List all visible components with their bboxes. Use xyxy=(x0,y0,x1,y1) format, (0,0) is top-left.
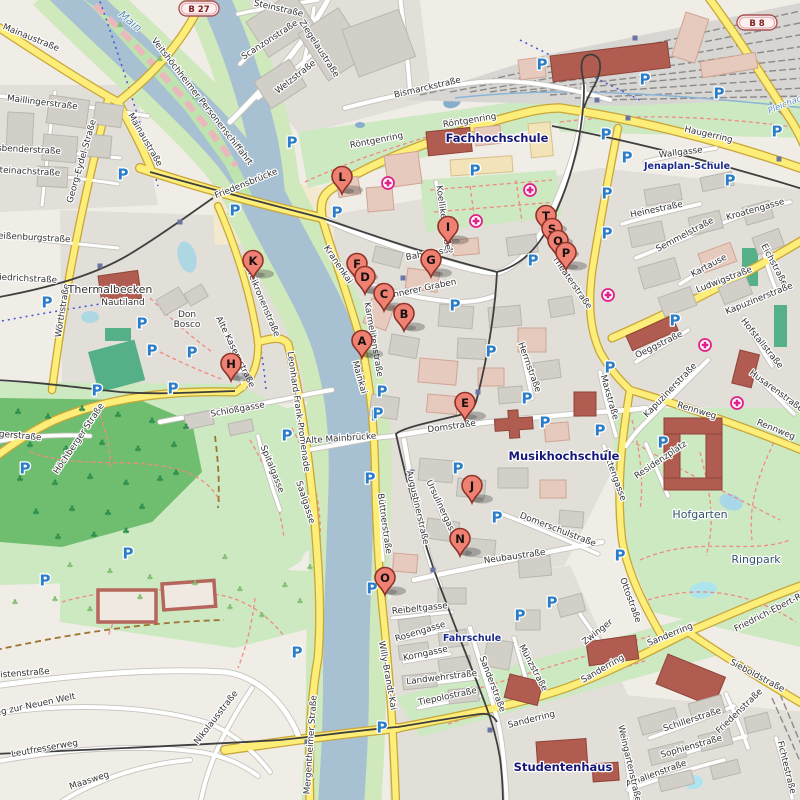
marker-letter: E xyxy=(461,396,469,410)
tram-stop-icon xyxy=(476,390,481,395)
poi-label: Thermalbecken xyxy=(67,283,153,296)
tree-icon: ♣ xyxy=(14,408,22,418)
parking-icon: P xyxy=(168,380,179,398)
parking-icon: P xyxy=(377,719,388,737)
tree-icon: ♣ xyxy=(66,561,73,570)
tram-stop-icon xyxy=(488,728,493,733)
parking-icon: P xyxy=(547,594,558,612)
tree-icon: ♣ xyxy=(51,595,58,604)
parking-icon: P xyxy=(602,225,613,243)
tree-icon: ♣ xyxy=(221,553,228,562)
tree-icon: ♣ xyxy=(32,508,40,518)
tram-stop-icon xyxy=(626,116,631,121)
tree-icon: ♣ xyxy=(98,439,106,449)
parking-icon: P xyxy=(670,312,681,330)
route-badge-label: B 8 xyxy=(749,19,764,29)
marker-letter: G xyxy=(426,253,435,267)
tree-icon: ♣ xyxy=(122,527,130,537)
building xyxy=(98,590,156,622)
tree-icon: ♣ xyxy=(258,611,265,620)
route-badge-label: B 27 xyxy=(188,5,209,15)
tree-icon: ♣ xyxy=(138,503,146,513)
tram-stop-icon xyxy=(431,568,436,573)
poi-label: Nautiland xyxy=(101,298,144,308)
pond xyxy=(355,122,365,128)
tree-icon: ♣ xyxy=(90,531,98,541)
parking-icon: P xyxy=(640,71,651,89)
park-label: Ringpark xyxy=(731,553,781,566)
tree-icon: ♣ xyxy=(54,533,62,543)
tree-icon: ♣ xyxy=(306,563,313,572)
map-canvas: ♣♣♣♣♣♣♣♣♣♣♣♣♣♣♣♣♣♣♣♣♣♣♣♣♣♣♣♣♣♣♣♣♣♣♣♣♣♣♣♣… xyxy=(0,0,800,800)
park-label: Hofgarten xyxy=(672,508,727,521)
parking-icon: P xyxy=(453,460,464,478)
tree-icon: ♣ xyxy=(156,475,164,485)
marker-letter: I xyxy=(446,220,450,234)
tree-icon: ♣ xyxy=(44,413,52,423)
parking-icon: P xyxy=(187,344,198,362)
tree-icon: ♣ xyxy=(172,469,180,479)
tram-stop-icon xyxy=(178,220,183,225)
parking-icon: P xyxy=(20,460,31,478)
parking-icon: P xyxy=(287,134,298,152)
building xyxy=(664,478,722,490)
tree-icon: ♣ xyxy=(78,405,86,415)
hospital-icon xyxy=(382,177,394,189)
tree-icon: ♣ xyxy=(191,579,198,588)
marker-letter: O xyxy=(380,571,390,585)
parking-icon: P xyxy=(365,470,376,488)
hospital-icon xyxy=(602,289,614,301)
parking-icon: P xyxy=(522,390,533,408)
hospital-icon xyxy=(470,215,482,227)
parking-icon: P xyxy=(42,294,53,312)
tram-stop-icon xyxy=(633,36,638,41)
building xyxy=(559,510,584,528)
marker-letter: K xyxy=(249,254,259,268)
tree-icon: ♣ xyxy=(106,567,113,576)
tree-icon: ♣ xyxy=(86,605,93,614)
parking-icon: P xyxy=(714,85,725,103)
building xyxy=(389,334,420,359)
tree-icon: ♣ xyxy=(68,505,76,515)
poi-label: Bosco xyxy=(174,320,201,330)
marker-letter: L xyxy=(338,170,346,184)
marker-letter: P xyxy=(562,246,570,260)
building xyxy=(706,434,722,478)
city-map: ♣♣♣♣♣♣♣♣♣♣♣♣♣♣♣♣♣♣♣♣♣♣♣♣♣♣♣♣♣♣♣♣♣♣♣♣♣♣♣♣… xyxy=(0,0,800,800)
building xyxy=(418,458,454,483)
marker-letter: J xyxy=(469,479,474,493)
hospital-icon xyxy=(731,397,743,409)
building xyxy=(498,468,528,488)
tree-icon: ♣ xyxy=(226,603,233,612)
pond xyxy=(81,311,99,323)
parking-icon: P xyxy=(492,509,503,527)
building xyxy=(498,386,523,404)
tram-stop-icon xyxy=(98,264,103,269)
parking-icon: P xyxy=(622,149,633,167)
tree-icon: ♣ xyxy=(182,423,190,433)
building xyxy=(540,480,566,498)
marker-letter: N xyxy=(455,532,465,546)
tree-icon: ♣ xyxy=(51,479,59,489)
parking-icon: P xyxy=(470,162,481,180)
poi-label: Don xyxy=(178,310,196,320)
building xyxy=(574,392,596,416)
hospital-icon xyxy=(524,184,536,196)
tree-icon: ♣ xyxy=(134,445,142,455)
parking-icon: P xyxy=(292,644,303,662)
building xyxy=(548,296,575,318)
marker-letter: C xyxy=(380,287,388,301)
parking-icon: P xyxy=(118,166,129,184)
tree-icon: ♣ xyxy=(236,585,243,594)
area-label: Studentenhaus xyxy=(514,760,613,774)
marker-letter: H xyxy=(226,357,236,371)
parking-icon: P xyxy=(282,427,293,445)
parking-icon: P xyxy=(658,434,669,452)
parking-icon: P xyxy=(137,315,148,333)
parking-icon: P xyxy=(602,185,613,203)
building xyxy=(392,553,417,573)
parking-icon: P xyxy=(605,359,616,377)
parking-icon: P xyxy=(123,545,134,563)
building xyxy=(457,338,486,359)
parking-icon: P xyxy=(92,382,103,400)
route-badge: B 27 xyxy=(179,1,219,16)
parking-icon: P xyxy=(332,204,343,222)
tree-icon: ♣ xyxy=(26,441,34,451)
parking-icon: P xyxy=(601,126,612,144)
parking-icon: P xyxy=(486,343,497,361)
parking-icon: P xyxy=(540,414,551,432)
area-label: Musikhochschule xyxy=(509,449,620,463)
tree-icon: ♣ xyxy=(136,593,143,602)
parking-icon: P xyxy=(147,342,158,360)
tram-stop-icon xyxy=(777,157,782,162)
tree-icon: ♣ xyxy=(148,417,156,427)
parking-icon: P xyxy=(772,123,783,141)
hospital-icon xyxy=(699,339,711,351)
tree-icon: ♣ xyxy=(281,581,288,590)
building xyxy=(162,580,216,610)
tram-stop-icon xyxy=(401,276,406,281)
tree-icon: ♣ xyxy=(170,441,178,451)
tree-icon: ♣ xyxy=(146,573,153,582)
area-label: Fachhochschule xyxy=(446,131,549,145)
parking-icon: P xyxy=(528,252,539,270)
parking-icon: P xyxy=(373,405,384,423)
parking-icon: P xyxy=(40,572,51,590)
parking-icon: P xyxy=(377,383,388,401)
parking-icon: P xyxy=(725,172,736,190)
parking-icon: P xyxy=(515,607,526,625)
marker-letter: D xyxy=(360,270,370,284)
building xyxy=(426,394,457,415)
tree-icon: ♣ xyxy=(122,479,130,489)
marker-letter: A xyxy=(358,334,367,348)
marker-letter: B xyxy=(400,307,409,321)
tree-icon: ♣ xyxy=(104,509,112,519)
school-label: Jenaplan-Schule xyxy=(643,161,730,172)
tree-icon: ♣ xyxy=(86,473,94,483)
tree-icon: ♣ xyxy=(114,411,122,421)
building xyxy=(418,358,458,385)
parking-icon: P xyxy=(615,547,626,565)
route-badge: B 8 xyxy=(737,15,777,30)
parking-icon: P xyxy=(595,422,606,440)
tram-stop-icon xyxy=(595,98,600,103)
parking-icon: P xyxy=(450,297,461,315)
school-label: Fahrschule xyxy=(443,633,501,644)
parking-icon: P xyxy=(230,202,241,220)
tree-icon: ♣ xyxy=(11,598,18,607)
parking-icon: P xyxy=(537,56,548,74)
tree-icon: ♣ xyxy=(296,597,303,606)
